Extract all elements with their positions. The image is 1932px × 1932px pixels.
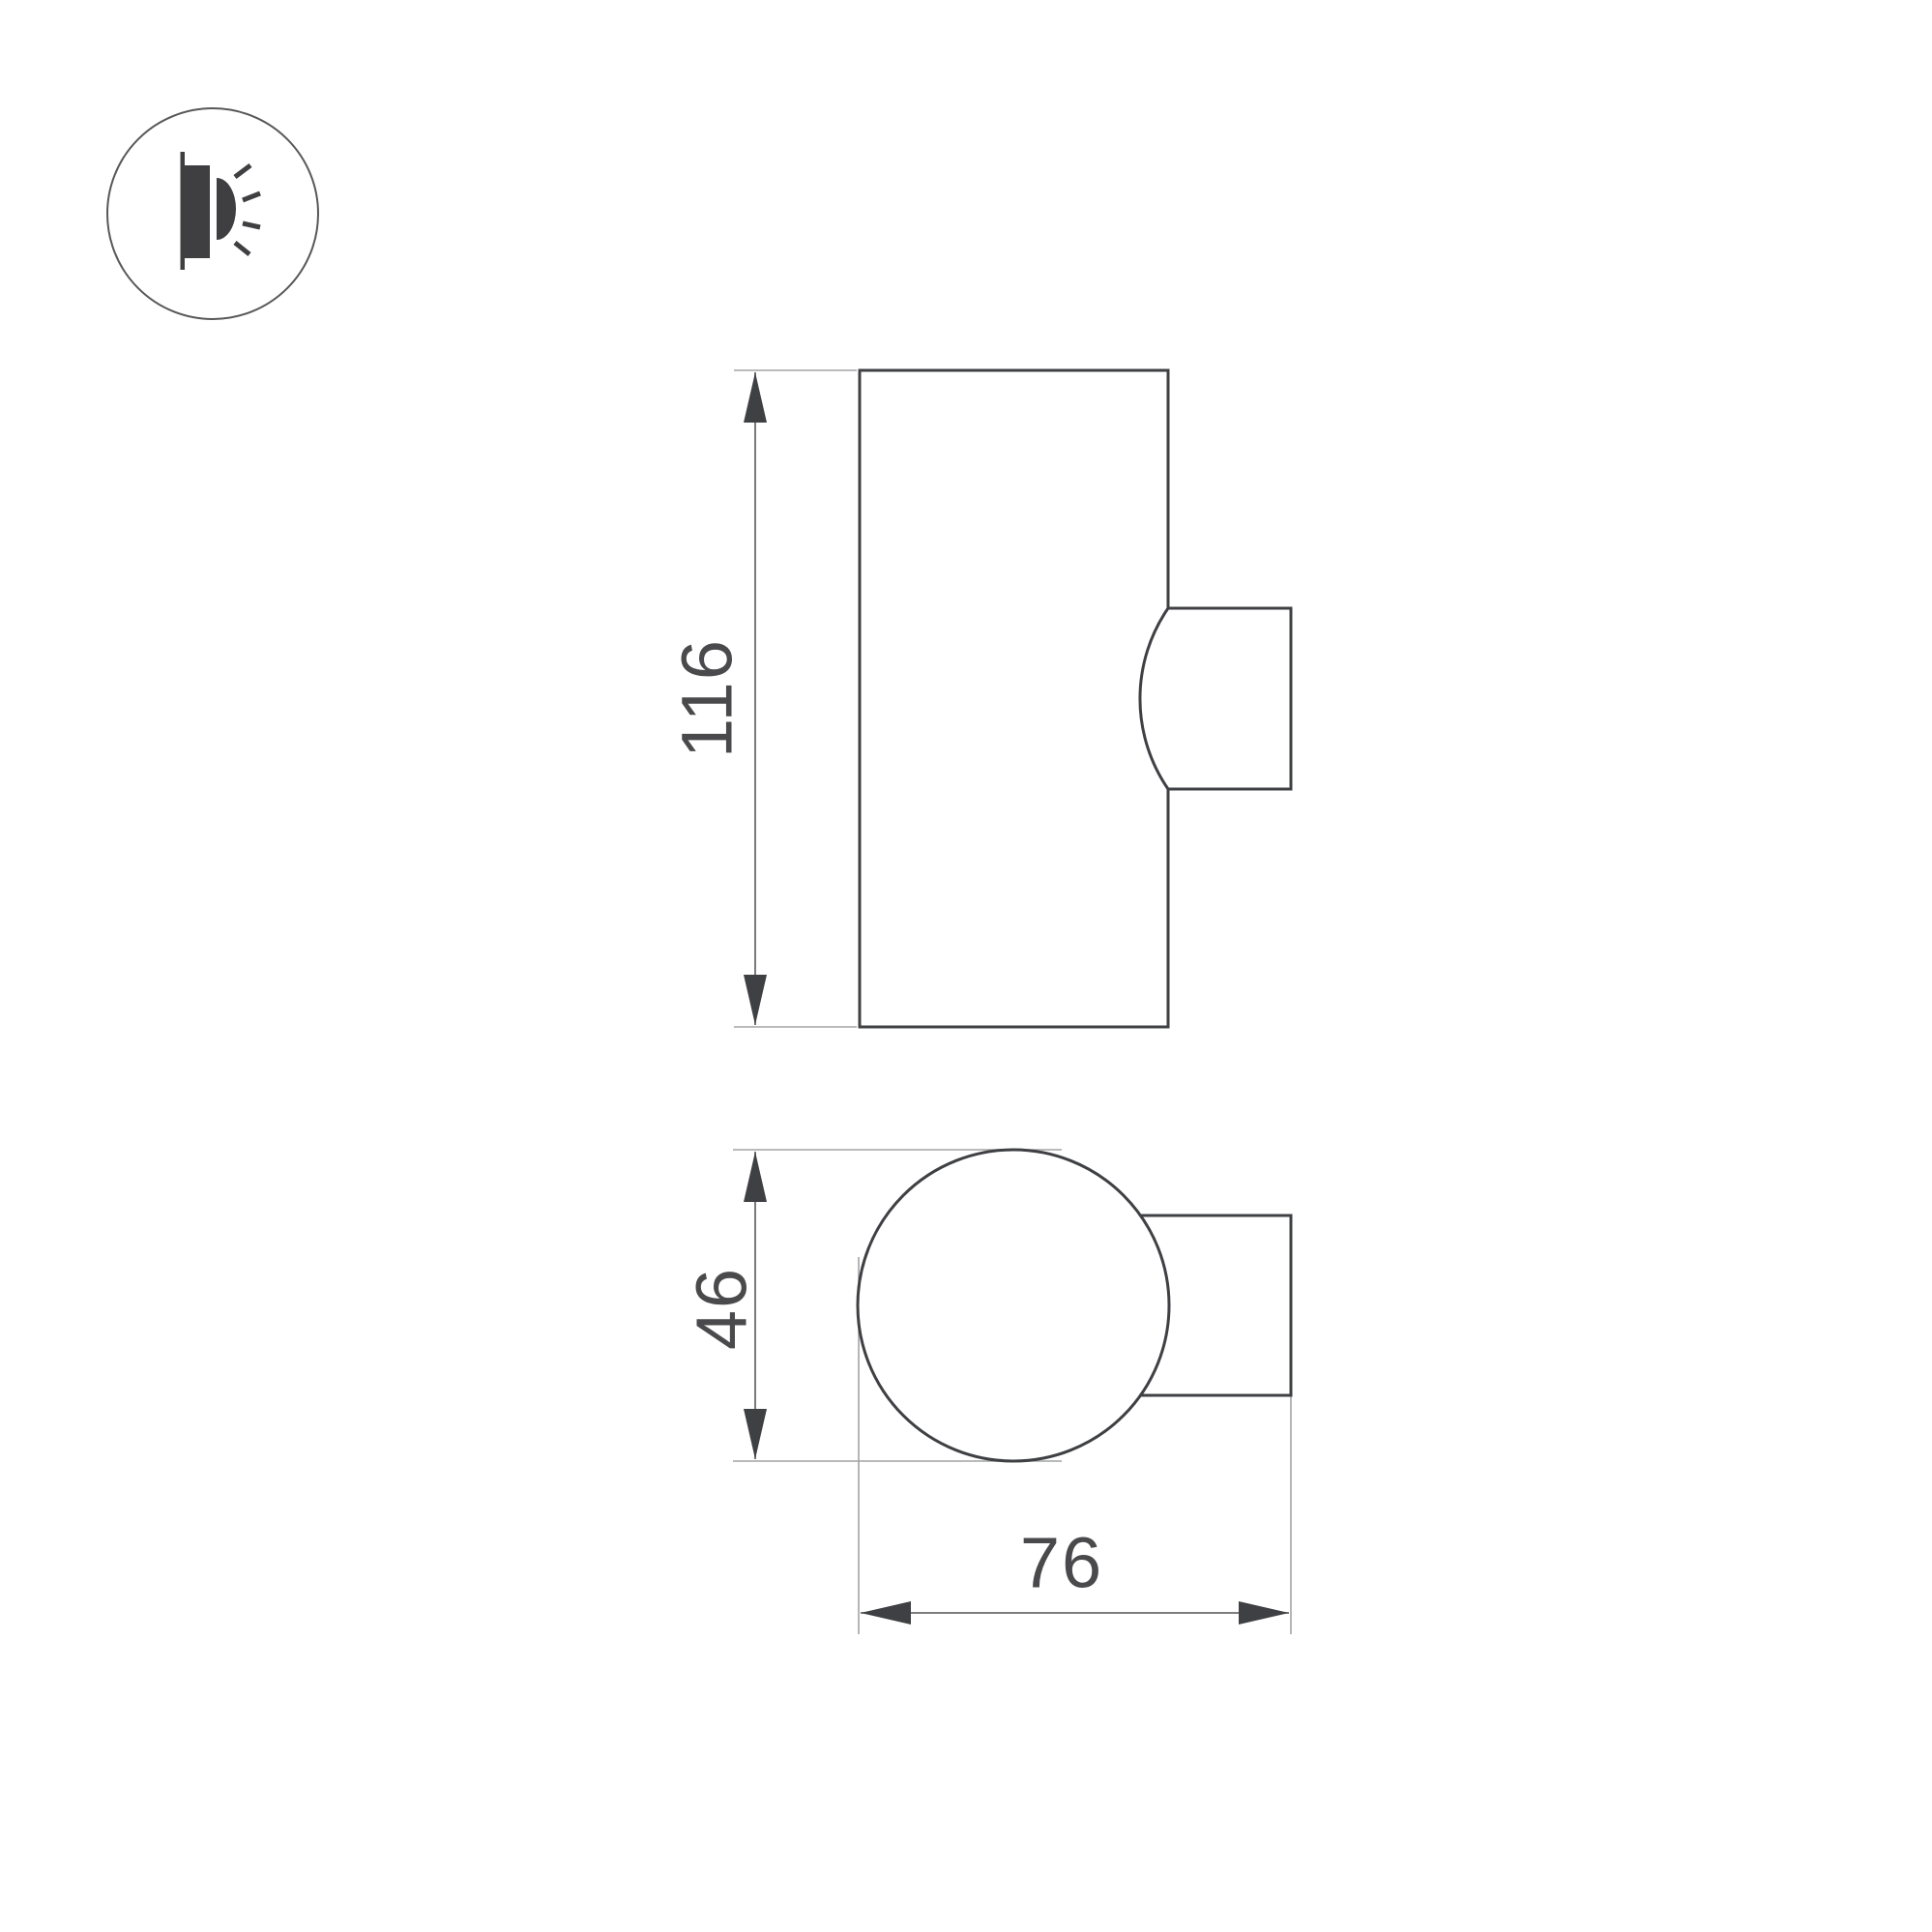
badge-circle xyxy=(107,108,318,319)
height-arrow-down xyxy=(744,975,767,1025)
depth-arrow-right xyxy=(1239,1601,1289,1625)
mount-bracket-side-outline xyxy=(1140,608,1291,789)
luminaire-dimension-drawing: 116 46 76 xyxy=(0,0,1932,1932)
height-arrow-up xyxy=(744,372,767,423)
diameter-arrow-up xyxy=(744,1152,767,1202)
technical-drawing-canvas: 116 46 76 xyxy=(0,0,1932,1932)
diameter-dimension-label: 46 xyxy=(682,1267,762,1350)
height-dimension-label: 116 xyxy=(667,638,747,758)
top-view: 46 76 xyxy=(682,1150,1292,1634)
diameter-arrow-down xyxy=(744,1409,767,1459)
lamp-body-plan-outline xyxy=(858,1150,1169,1461)
icon-lamp-body xyxy=(185,165,210,258)
depth-arrow-left xyxy=(861,1601,911,1625)
depth-dimension-label: 76 xyxy=(1020,1523,1103,1603)
icon-wall-line xyxy=(181,152,186,270)
lamp-body-side-outline xyxy=(860,370,1168,1027)
wall-light-badge xyxy=(107,108,318,319)
side-view: 116 xyxy=(667,370,1292,1027)
